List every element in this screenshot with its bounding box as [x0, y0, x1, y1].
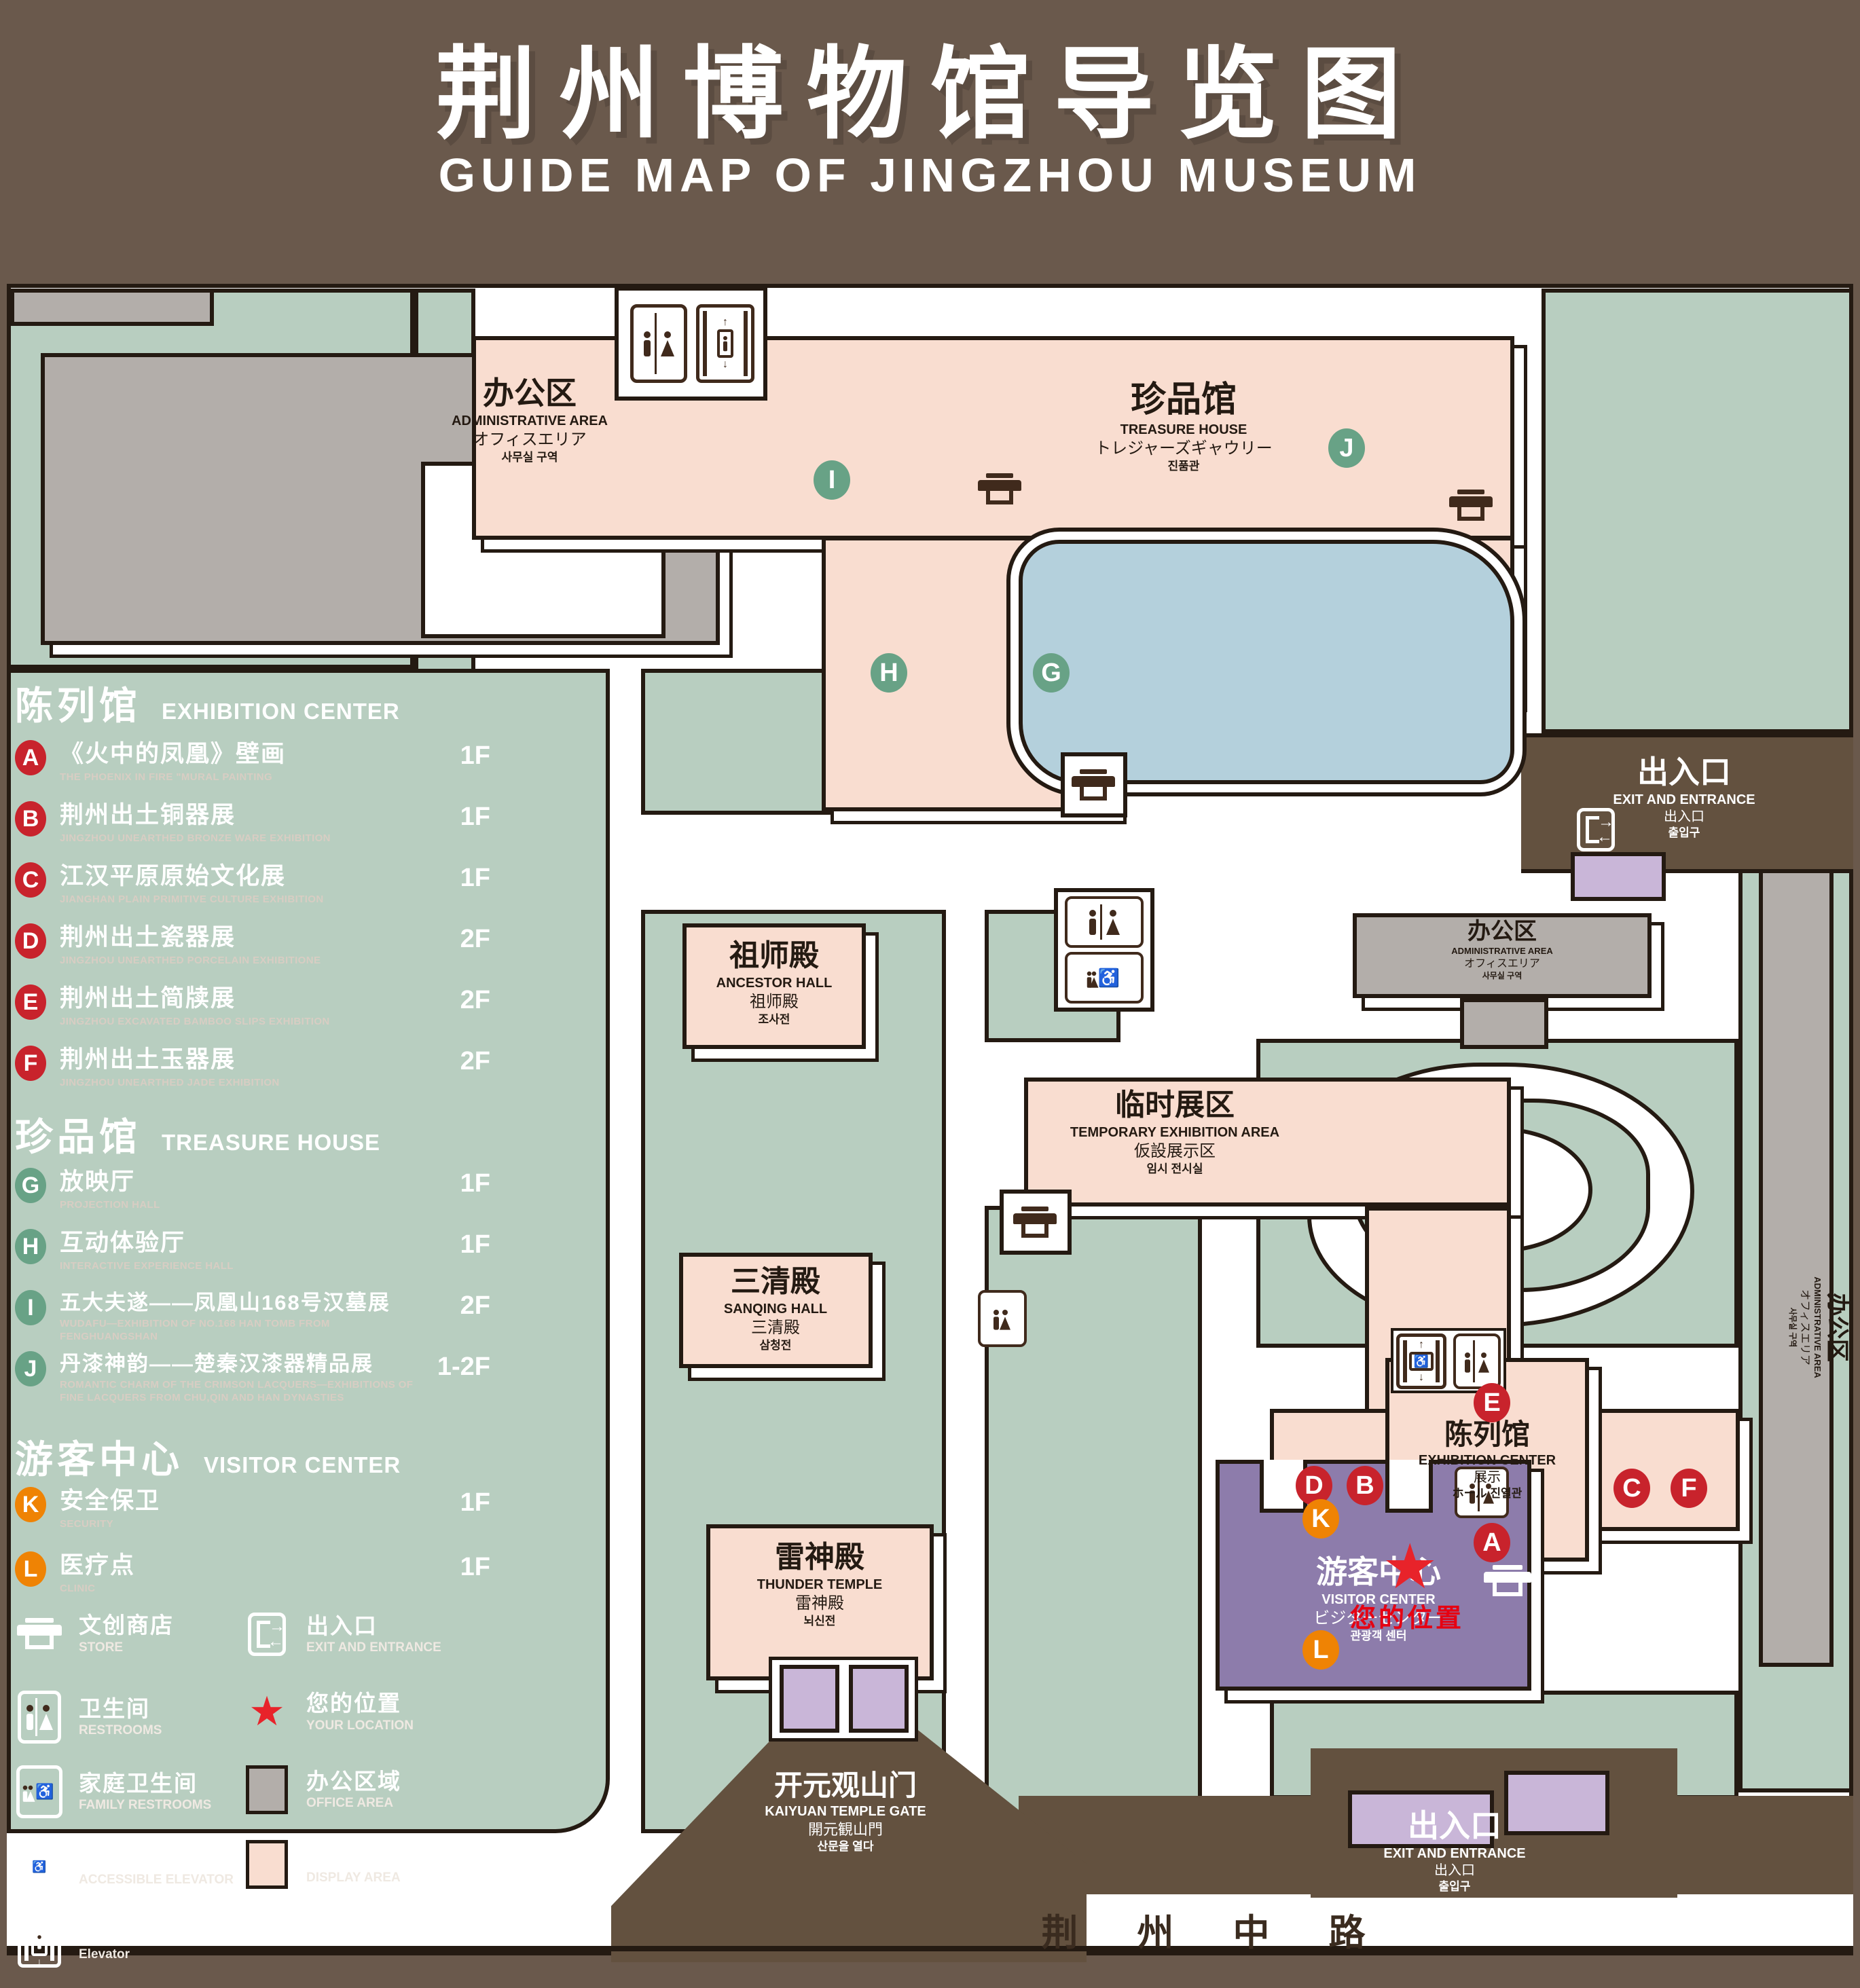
map-marker-c: C — [1613, 1469, 1650, 1508]
restroom-icon — [1453, 1333, 1501, 1389]
restroom-icon — [18, 1691, 61, 1744]
map-marker-k: K — [1302, 1499, 1339, 1539]
label-exit-south: 出入口 EXIT AND ENTRANCE 出入口 출입구 — [1319, 1807, 1590, 1894]
park-block-northeast — [1542, 289, 1853, 733]
elevator-icon — [696, 304, 754, 383]
legend-symbol-store: 文创商店STORE — [15, 1613, 174, 1655]
label-admin-strip: 办公区 ADMINISTRATIVE AREA オフィスエリア 사무실 구역 — [1749, 1198, 1850, 1456]
label-sanqing-hall: 三清殿 SANQING HALL 三清殿 삼청전 — [606, 1264, 945, 1352]
map-marker-h: H — [871, 653, 907, 693]
accessible-elevator-icon — [1396, 1333, 1446, 1389]
legend-symbol-family-restrooms: 家庭卫生间FAMILY RESTROOMS — [15, 1765, 211, 1818]
legend-symbol-display-area: 展示区域DISPLAY AREA — [242, 1840, 401, 1889]
office-area-swatch — [246, 1765, 288, 1814]
store-icon — [1449, 485, 1493, 526]
label-temporary-exhibition: 临时展区 TEMPORARY EXHIBITION AREA 仮設展示区 임시 … — [971, 1088, 1379, 1176]
legend-symbol-restrooms: 卫生间RESTROOMS — [15, 1691, 162, 1744]
label-thunder-temple: 雷神殿 THUNDER TEMPLE 雷神殿 뇌신전 — [650, 1540, 989, 1628]
legend-symbol-office-area: 办公区域OFFICE AREA — [242, 1765, 401, 1814]
map-marker-e: E — [1474, 1383, 1510, 1422]
display-area-swatch — [246, 1840, 288, 1889]
legend-symbol-your-location: 您的位置YOUR LOCATION — [242, 1691, 414, 1733]
page-title: 荆州博物馆导览图 — [0, 12, 1860, 158]
map-marker-f: F — [1671, 1469, 1707, 1508]
legend-panel: 陈列馆 EXHIBITION CENTER A 1F 《火中的凤凰》壁画 THE… — [15, 676, 490, 1986]
map-marker-i: I — [814, 460, 850, 500]
map-marker-a: A — [1474, 1523, 1510, 1562]
pond — [1019, 540, 1514, 784]
gate-pillar-west — [780, 1665, 839, 1733]
female-figure-icon — [661, 340, 674, 356]
store-icon — [1072, 765, 1115, 805]
exit-icon — [248, 1613, 286, 1656]
label-exit-northeast: 出入口 EXIT AND ENTRANCE 出入口 출입구 — [1542, 754, 1827, 840]
label-road: 荆 州 中 路 — [978, 1902, 1453, 1956]
restroom-icon — [630, 304, 687, 383]
elevator-icon — [18, 1915, 61, 1968]
store-icon — [1013, 1202, 1057, 1242]
legend-section-treasure-house: 珍品馆 TREASURE HOUSE — [15, 1107, 380, 1162]
gate-pillar-east — [849, 1665, 909, 1733]
office-sliver-corner — [10, 289, 214, 326]
your-location-star-icon — [249, 1691, 285, 1732]
map-marker-g: G — [1033, 653, 1070, 693]
your-location-star-icon — [1382, 1536, 1438, 1598]
your-location-label: 您的位置 — [1350, 1597, 1464, 1634]
exit-northeast-gatehouse — [1571, 852, 1666, 901]
label-ancestor-hall: 祖师殿 ANCESTOR HALL 祖师殿 조사전 — [604, 938, 944, 1027]
map-marker-l: L — [1302, 1630, 1339, 1670]
family-restroom-icon — [16, 1765, 62, 1818]
legend-section-exhibition-center: 陈列馆 EXHIBITION CENTER — [15, 676, 400, 731]
store-icon — [978, 468, 1021, 509]
accessible-elevator-icon — [18, 1840, 61, 1893]
label-kaiyuan-gate: 开元观山门 KAIYUAN TEMPLE GATE 開元観山門 산문을 열다 — [689, 1769, 1002, 1854]
building-admin-east-stub — [1460, 998, 1548, 1049]
label-exhibition-center: 陈列馆 EXHIBITION CENTER 展示 ホール 진열관 — [1351, 1418, 1623, 1501]
map-marker-d: D — [1296, 1466, 1332, 1505]
label-admin-northwest: 办公区 ADMINISTRATIVE AREA オフィスエリア 사무실 구역 — [292, 375, 767, 464]
legend-symbol-exit: 出入口EXIT AND ENTRANCE — [242, 1613, 441, 1656]
family-restroom-icon — [1065, 952, 1144, 1004]
map-marker-b: B — [1347, 1466, 1383, 1505]
restroom-icon — [978, 1290, 1027, 1347]
legend-symbol-accessible-elevator: 无障碍电梯ACCESSIBLE ELEVATOR — [15, 1840, 234, 1893]
legend-section-visitor-center: 游客中心 VISITOR CENTER — [15, 1429, 401, 1484]
legend-symbol-elevator: 电梯Elevator — [15, 1915, 130, 1968]
map-marker-j: J — [1328, 428, 1365, 468]
store-icon — [17, 1613, 62, 1655]
label-admin-east: 办公区 ADMINISTRATIVE AREA オフィスエリア 사무실 구역 — [1366, 918, 1638, 981]
male-figure-icon — [644, 340, 651, 356]
page-subtitle: GUIDE MAP OF JINGZHOU MUSEUM — [0, 148, 1860, 202]
restroom-icon — [1065, 896, 1144, 948]
